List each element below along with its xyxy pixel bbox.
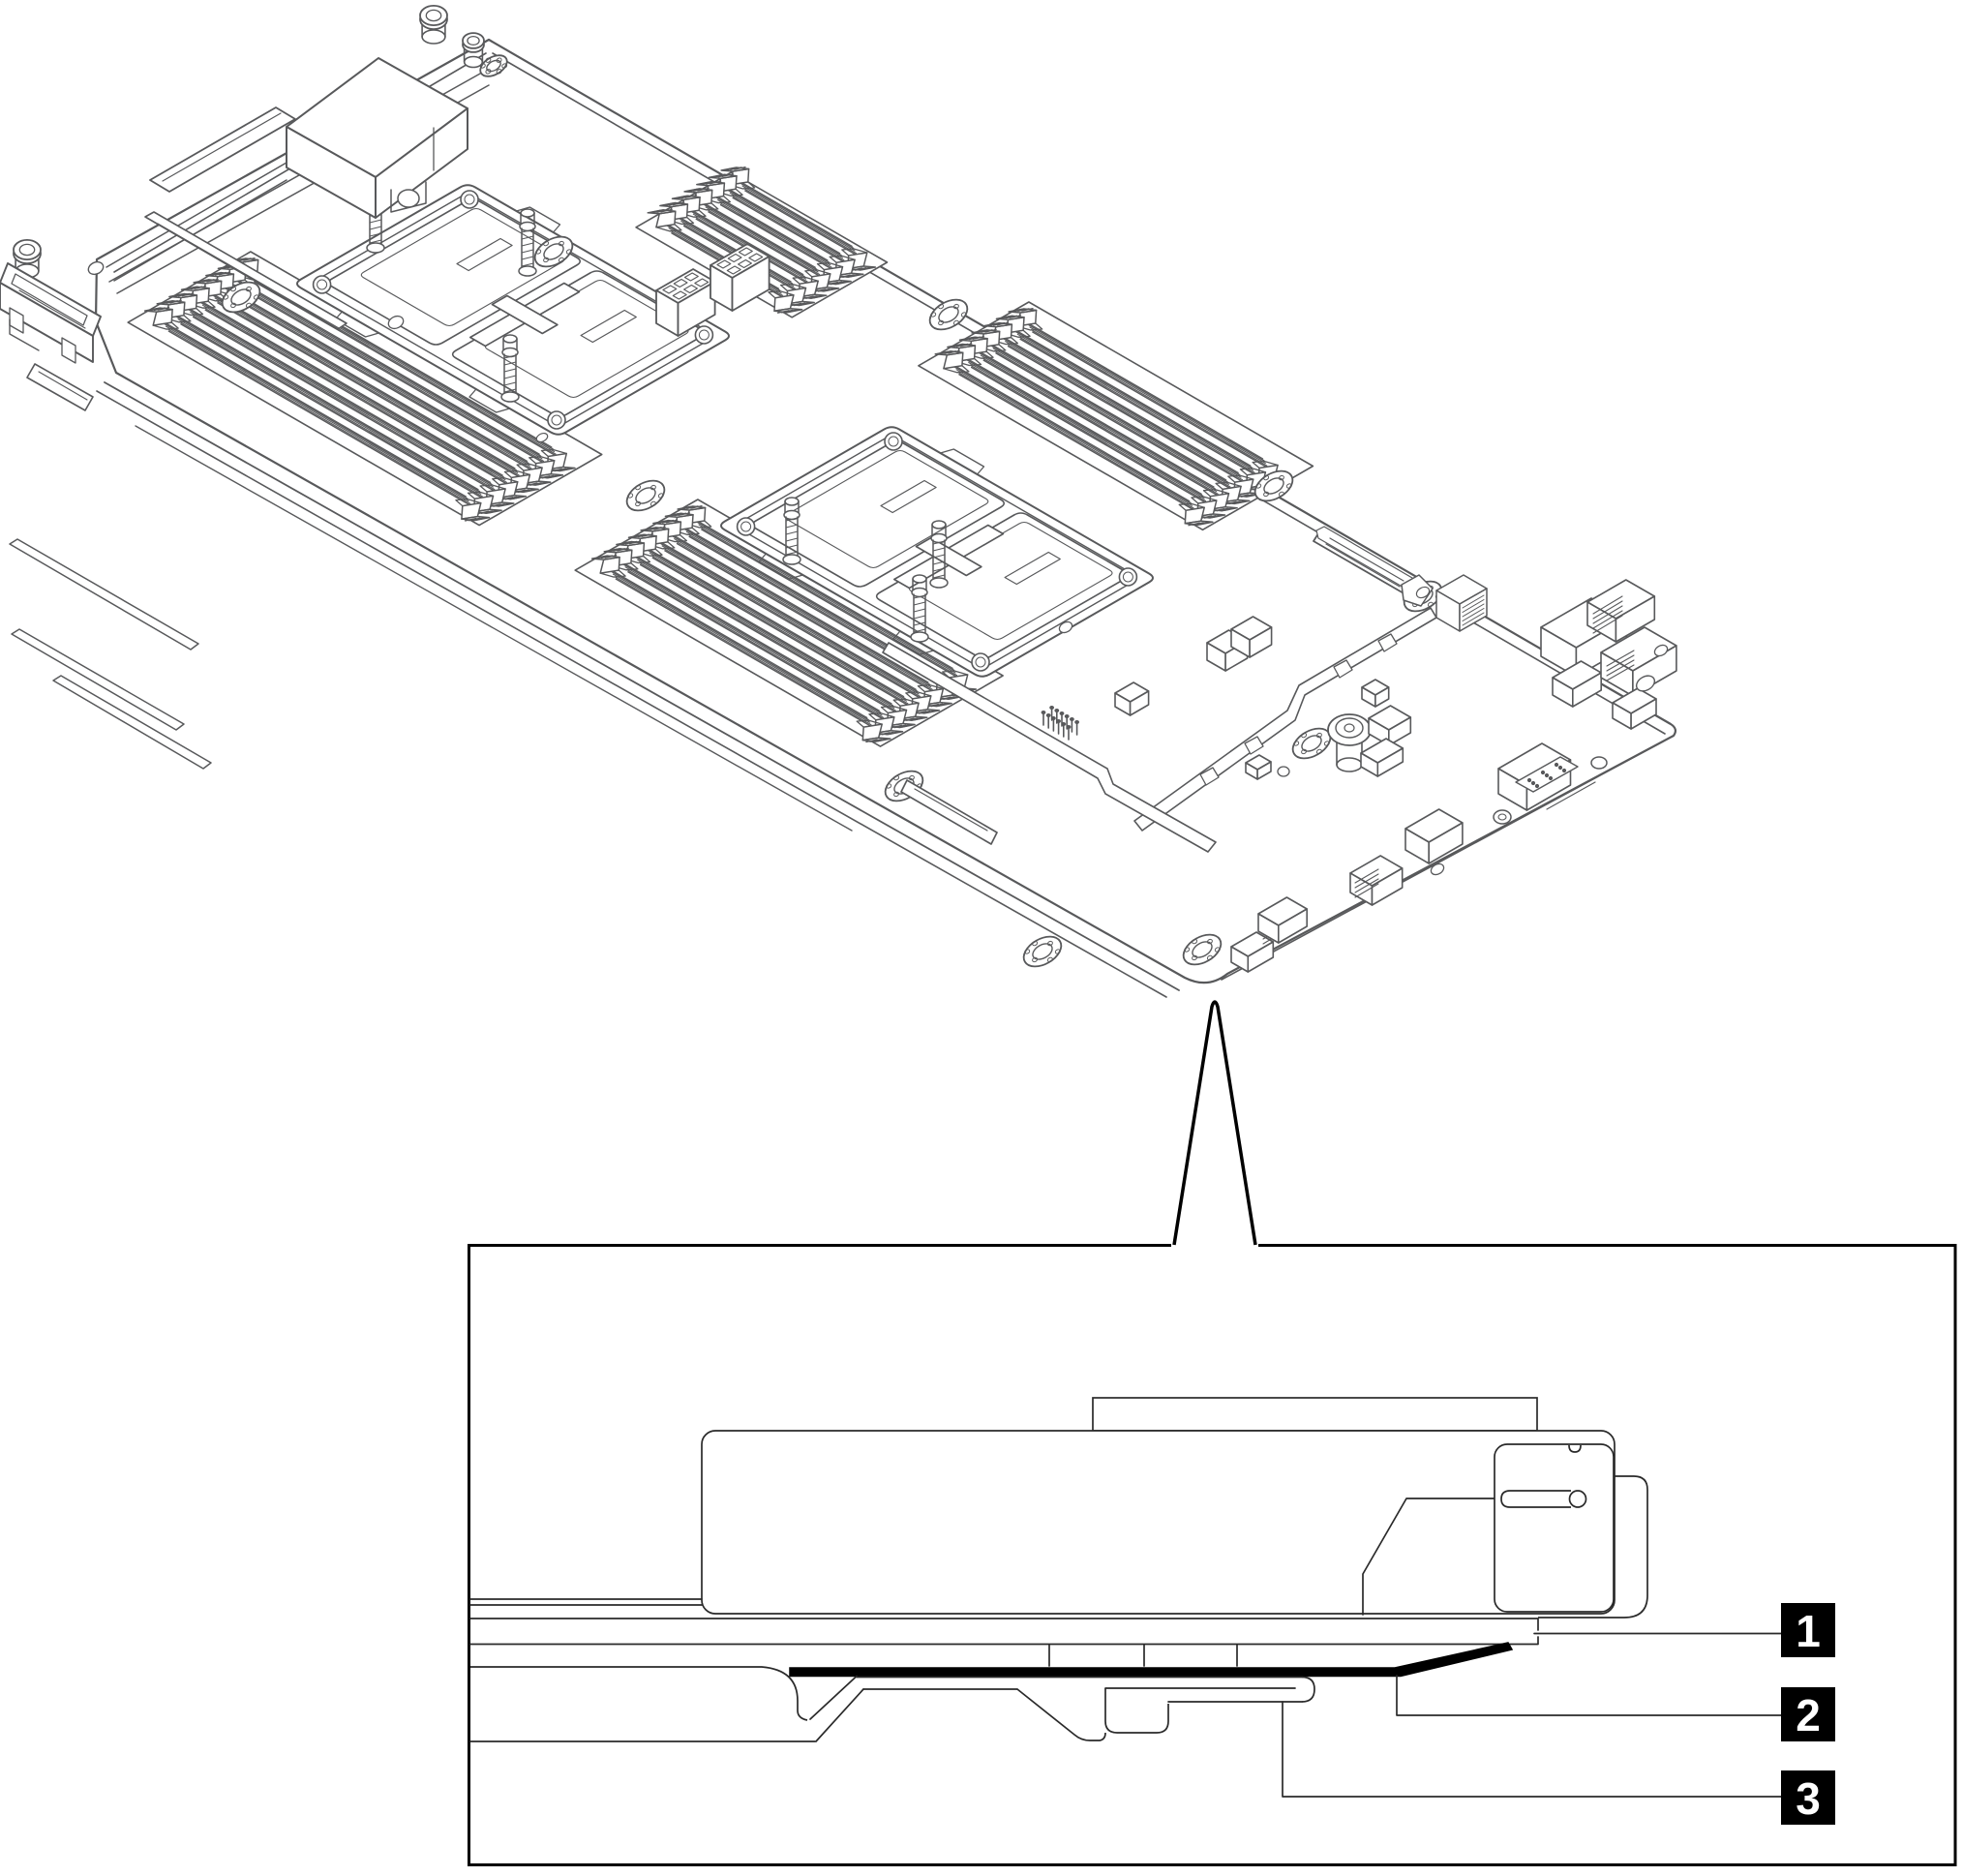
svg-text:3: 3 [1796,1773,1821,1824]
svg-text:1: 1 [1796,1606,1821,1656]
svg-text:2: 2 [1796,1690,1821,1740]
